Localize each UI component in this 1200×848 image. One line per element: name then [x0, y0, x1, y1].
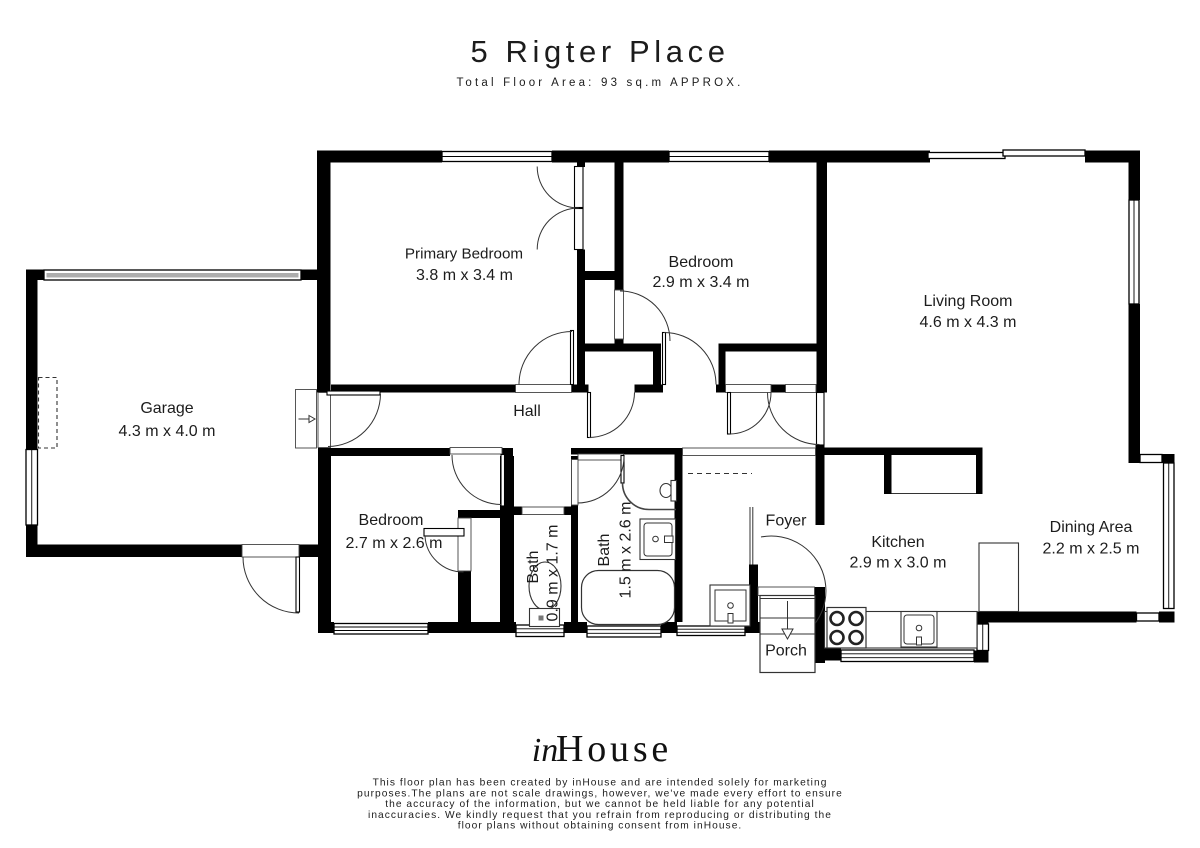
svg-text:2.9 m x 3.4 m: 2.9 m x 3.4 m: [653, 274, 750, 291]
svg-text:in: in: [532, 732, 558, 769]
svg-text:2.9 m x 3.0 m: 2.9 m x 3.0 m: [850, 555, 947, 572]
svg-text:Foyer: Foyer: [766, 513, 808, 530]
svg-text:Bath: Bath: [596, 534, 613, 567]
svg-text:2.7 m x 2.6 m: 2.7 m x 2.6 m: [346, 535, 443, 552]
svg-text:4.6 m x 4.3 m: 4.6 m x 4.3 m: [920, 314, 1017, 331]
svg-text:3.8 m x 3.4 m: 3.8 m x 3.4 m: [416, 267, 513, 284]
svg-text:0.9 m x 1.7 m: 0.9 m x 1.7 m: [545, 525, 562, 622]
svg-text:4.3 m x 4.0 m: 4.3 m x 4.0 m: [119, 423, 216, 440]
svg-text:1.5 m x 2.6 m: 1.5 m x 2.6 m: [618, 502, 635, 599]
svg-text:Bath: Bath: [525, 551, 542, 584]
svg-text:Dining Area: Dining Area: [1050, 519, 1133, 536]
svg-text:5 Rigter Place: 5 Rigter Place: [470, 34, 729, 69]
svg-text:purposes.The plans are not sca: purposes.The plans are not scale drawing…: [357, 788, 843, 799]
svg-text:floor plans without obtaining: floor plans without obtaining consent fr…: [458, 821, 743, 832]
svg-text:Bedroom: Bedroom: [669, 254, 734, 271]
svg-text:2.2 m x 2.5 m: 2.2 m x 2.5 m: [1043, 541, 1140, 558]
svg-text:Bedroom: Bedroom: [359, 512, 424, 529]
svg-text:Total Floor Area: 93 sq.m APPR: Total Floor Area: 93 sq.m APPROX.: [456, 77, 743, 89]
svg-text:Hall: Hall: [513, 403, 541, 420]
svg-text:Garage: Garage: [140, 400, 193, 417]
svg-text:inaccuracies. We kindly reques: inaccuracies. We kindly request that you…: [368, 810, 832, 821]
svg-text:Kitchen: Kitchen: [871, 534, 924, 551]
svg-text:Porch: Porch: [765, 643, 807, 660]
svg-text:the accuracy of the informatio: the accuracy of the information, but we …: [385, 799, 815, 810]
svg-text:House: House: [556, 728, 672, 770]
svg-text:Living Room: Living Room: [924, 293, 1013, 310]
svg-text:Primary Bedroom: Primary Bedroom: [405, 246, 523, 263]
svg-text:This floor plan has been creat: This floor plan has been created by inHo…: [373, 778, 828, 789]
